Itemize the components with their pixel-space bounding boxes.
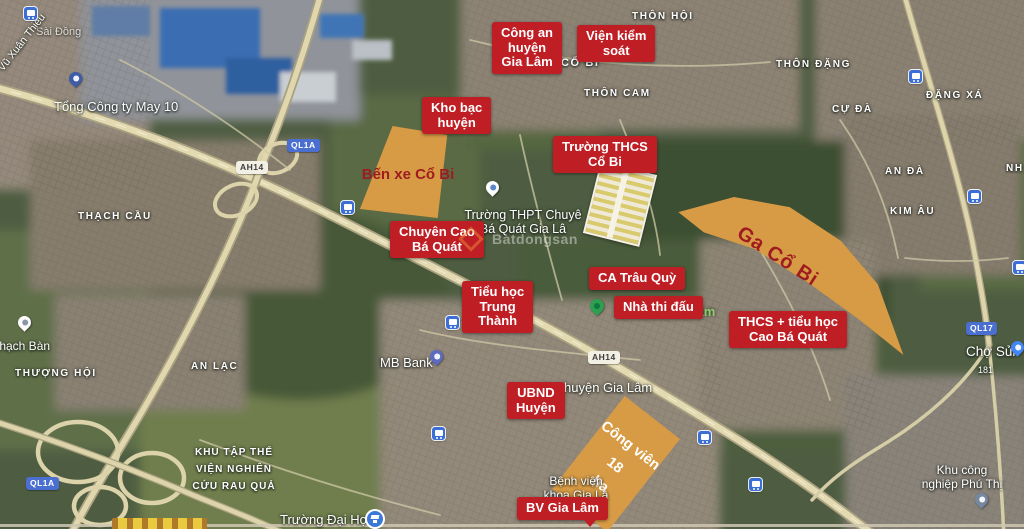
map-label-truong-dai-hoc: Trường Đại Học (280, 512, 373, 527)
watermark-text: Batdongsan (492, 231, 578, 247)
cutoff-label (112, 518, 207, 529)
annotation-bv-gia-lam: BV Gia Lâm (517, 497, 608, 520)
map-label-thuong-hoi: THƯỢNG HỘI (15, 368, 97, 379)
map-label-thon-hoi: THÔN HỘI (632, 11, 694, 22)
watermark: Batdongsan (462, 230, 578, 248)
map-label-cu-da: CỰ ĐÀ (832, 104, 873, 115)
annotation-cong-an: Công an huyện Gia Lâm (492, 22, 562, 74)
bus-stop-icon[interactable] (432, 427, 445, 440)
map-label-thon-dang: THÔN ĐẶNG (776, 59, 851, 70)
bus-stop-icon[interactable] (968, 190, 981, 203)
bus-stop-icon[interactable] (749, 478, 762, 491)
route-shield-ql17: QL17 (966, 322, 997, 335)
annotation-vien-kiem-soat: Viện kiểm soát (577, 25, 655, 62)
map-label-thach-cau: THẠCH CẦU (78, 211, 152, 222)
bus-stop-icon[interactable] (24, 7, 37, 20)
map-label-an-da: AN ĐÀ (885, 166, 925, 177)
map-label-khu-tap-the: KHU TẬP THỂ VIỆN NGHIÊN CỨU RAU QUẢ (188, 444, 280, 495)
satellite-terrain (0, 0, 1024, 529)
route-shield-ah14-nw: AH14 (236, 161, 268, 174)
route-shield-ql1a: QL1A (287, 139, 320, 152)
zone-ben-xe-label: Bến xe Cổ Bi (358, 166, 458, 183)
route-shield-ah14-mid: AH14 (588, 351, 620, 364)
bus-stop-icon[interactable] (341, 201, 354, 214)
annotation-ubnd: UBND Huyện (507, 382, 565, 419)
bus-stop-icon[interactable] (1013, 261, 1024, 274)
annotation-pointer (583, 519, 597, 527)
bus-stop-icon[interactable] (446, 316, 459, 329)
map-label-dang-xa: ĐẶNG XÁ (926, 90, 983, 101)
bus-stop-icon[interactable] (698, 431, 711, 444)
annotation-kho-bac: Kho bạc huyện (422, 97, 491, 134)
map-label-nh-partial: NH (1006, 163, 1024, 174)
map-label-khu-cn-phu-thi: Khu công nghiệp Phú Thị (918, 463, 1006, 491)
map-label-tong-cty-may10: Tổng Công ty May 10 (54, 99, 178, 114)
route-shield-ql1a-sw: QL1A (26, 477, 59, 490)
annotation-truong-thcs: Trường THCS Cổ Bi (553, 136, 657, 173)
watermark-diamond-icon (458, 226, 483, 251)
bus-stop-icon[interactable] (909, 70, 922, 83)
map-label-kim-au: KIM ÂU (890, 206, 935, 217)
annotation-tieu-hoc: Tiểu học Trung Thành (462, 281, 533, 333)
map-label-an-lac: AN LẠC (191, 361, 238, 372)
satellite-map-canvas[interactable]: Bến xe Cổ Bi Ga Cổ Bi Công viên 18 ha TH… (0, 0, 1024, 529)
map-label-cho-sui: Chợ Sủi (966, 344, 1015, 359)
map-label-mb-bank: MB Bank (380, 355, 433, 370)
map-label-thon-cam: THÔN CAM (584, 88, 651, 99)
map-label-sai-dong: Sài Đồng (36, 26, 81, 38)
map-label-route-181: 181 (978, 365, 993, 375)
map-label-huyen-gia-lam: huyện Gia Lâm (564, 380, 652, 395)
map-label-thach-ban: Thạch Bàn (0, 339, 50, 353)
annotation-thcs-tieu-hoc-cbq: THCS + tiểu học Cao Bá Quát (729, 311, 847, 348)
annotation-ca-trau-quy: CA Trâu Quỳ (589, 267, 685, 290)
university-poi-icon[interactable] (367, 511, 383, 527)
annotation-nha-thi-dau: Nhà thi đấu (614, 296, 703, 319)
